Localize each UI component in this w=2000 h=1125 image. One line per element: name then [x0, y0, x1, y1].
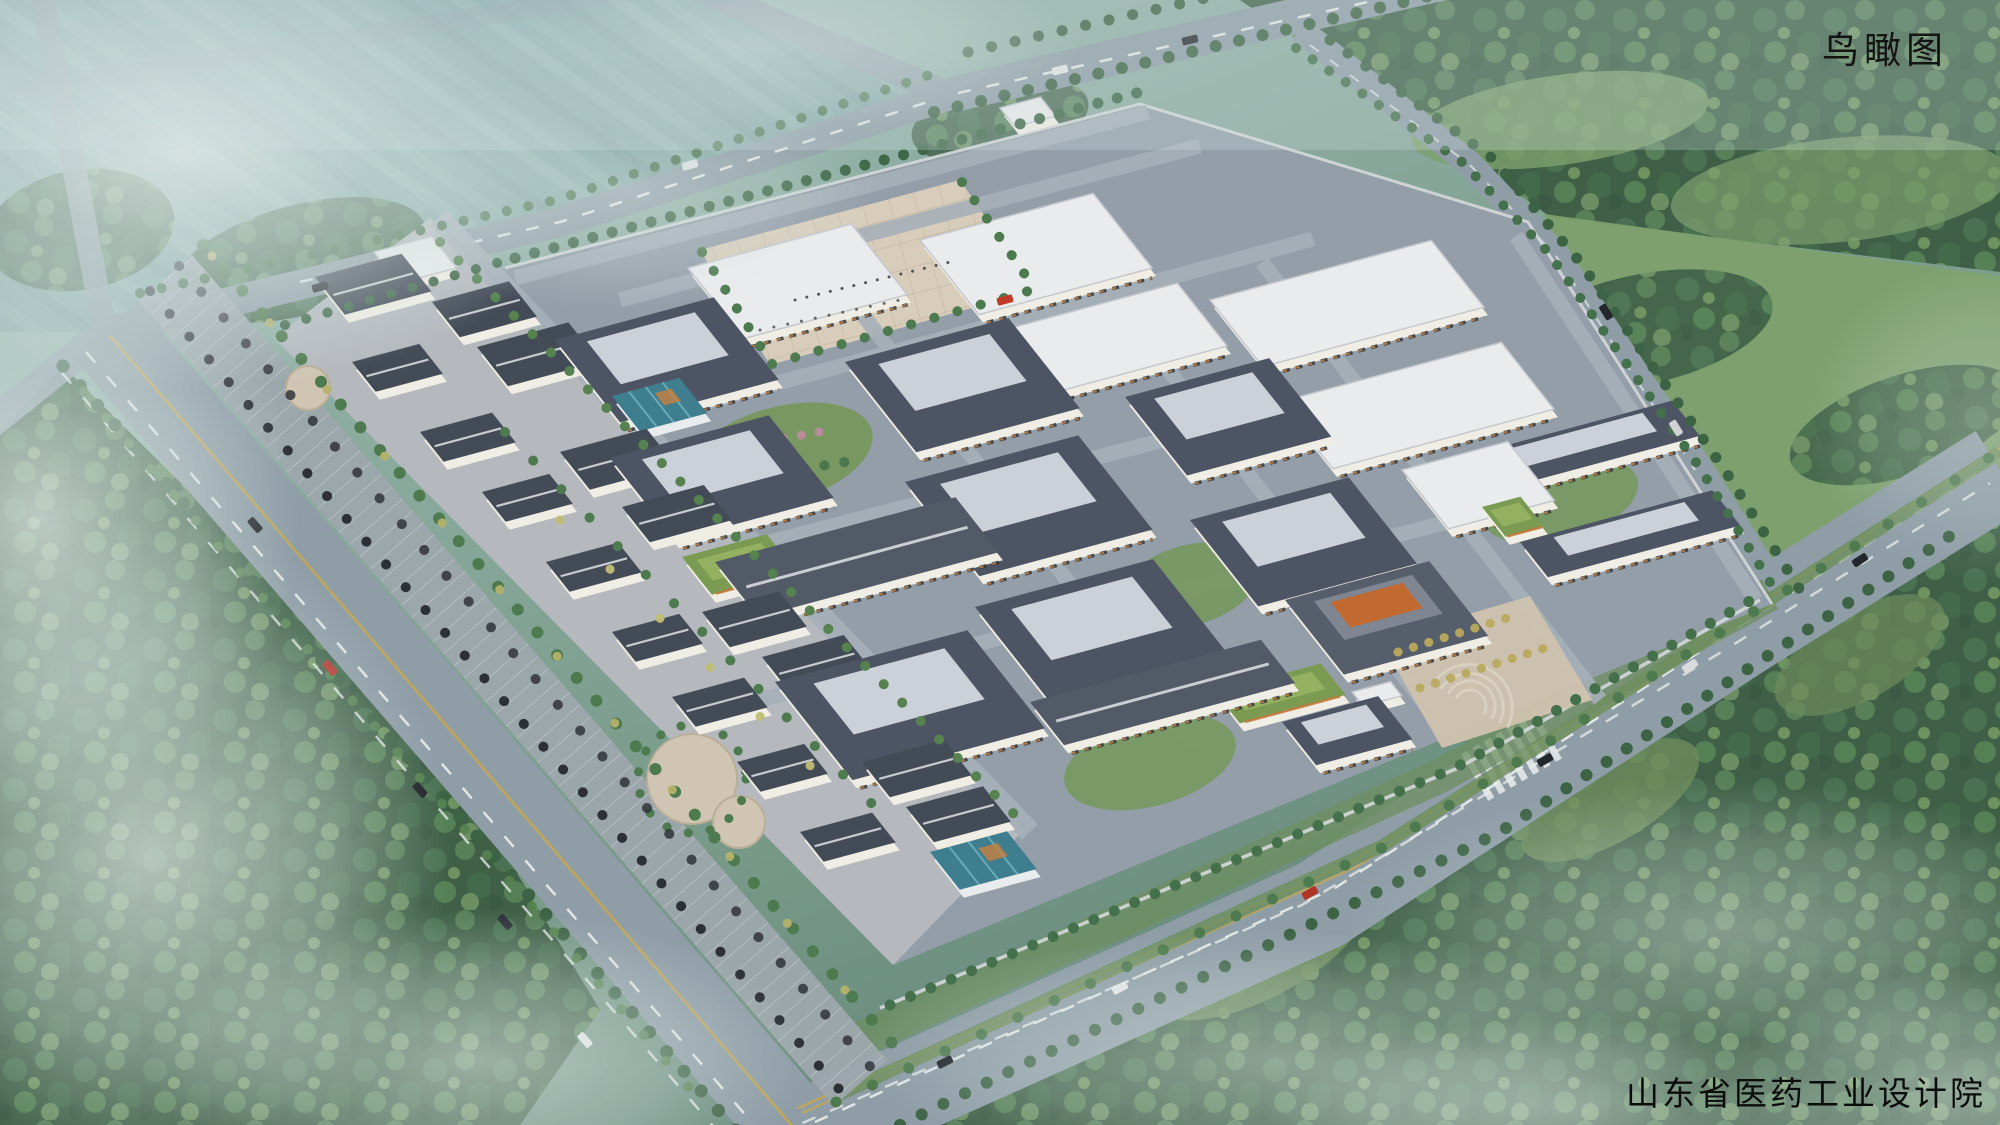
design-institute-credit: 山东省医药工业设计院: [1626, 1067, 1986, 1115]
scene-svg: [0, 0, 2000, 1125]
atmosphere-haze: [0, 0, 2000, 150]
view-title-label: 鸟瞰图: [1822, 20, 1948, 74]
aerial-rendering-page: 鸟瞰图 山东省医药工业设计院: [0, 0, 2000, 1125]
